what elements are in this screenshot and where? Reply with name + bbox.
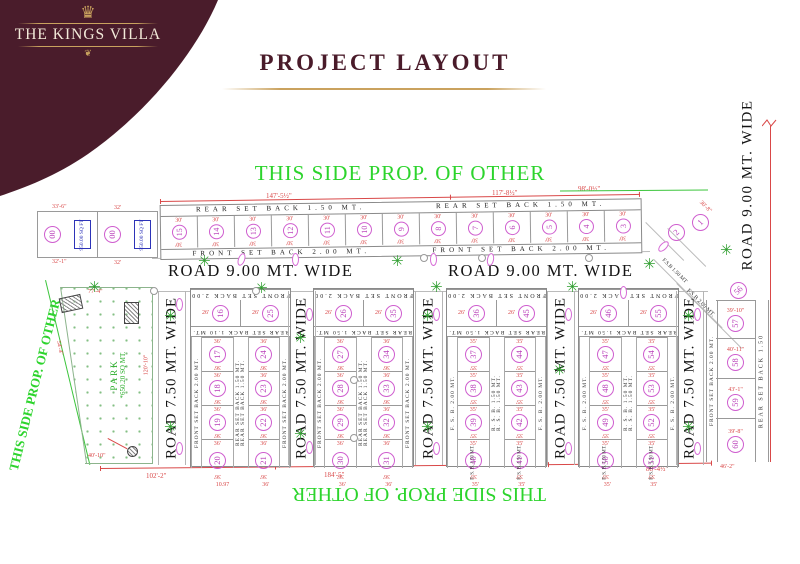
lamp-icon	[306, 441, 313, 454]
manhole-icon	[350, 376, 358, 384]
plot-number: 52	[643, 414, 660, 431]
manhole-icon	[478, 254, 486, 262]
plot-cell: 30'330'	[604, 210, 641, 242]
lamp-icon	[656, 239, 670, 253]
plot-cell: 36'1836'	[202, 371, 233, 405]
plot-cell: 26'25	[240, 300, 290, 326]
plot-column: 36'3436'36'3336'36'3236'36'3136'36'	[372, 337, 403, 468]
plot-dim: 26'	[252, 310, 259, 316]
tree-icon: ✳	[421, 420, 434, 435]
plot-cell: 26'26	[314, 300, 363, 326]
plot-number: 8	[430, 221, 445, 236]
rear-setback-label: REAR SET BACK 1.50 MT.	[447, 326, 546, 337]
plot-dim: 36'	[383, 432, 390, 438]
plot-cell: 35'4335'	[505, 371, 536, 405]
tree-icon: ✳	[553, 363, 566, 378]
front-setback-side-strip: FRONT SET BACK 2.00 MT.	[402, 337, 413, 468]
tree-icon: ✳	[421, 309, 434, 324]
plot-cell: 35'5235'	[637, 405, 668, 439]
plot-number: 9	[393, 222, 408, 237]
plot-dim: 35'	[472, 482, 479, 488]
plot-cell: 40'-11"58	[716, 338, 755, 378]
plot-dim: 35'	[516, 432, 523, 438]
plot-cell: 30'630'	[493, 212, 530, 244]
plot-area-text: 950.00 SQ FT	[79, 219, 85, 250]
plot-column: 36'1736'36'1836'36'1936'36'2036'10.97	[202, 337, 233, 468]
plot-number: 47	[597, 346, 614, 363]
plot-number: 6	[504, 220, 519, 235]
plot-dim: 36'	[214, 473, 221, 479]
plot-cell: 35'4035'35'F. S. B. 1.50 MT.	[458, 439, 489, 480]
tree-icon: ✳	[643, 257, 656, 272]
plot-dim: 35'	[516, 364, 523, 370]
plot-cell: 43'-1"59	[716, 378, 755, 418]
plot-number: 10	[356, 222, 371, 237]
plot-number: 45	[518, 305, 535, 322]
plot-cell: 36'2336'	[249, 371, 280, 405]
plot-dim: 30'	[471, 214, 478, 220]
plot-cell: 35'4835'	[590, 371, 621, 405]
plot-dim: 26'	[640, 310, 647, 316]
plot-dim: 30'	[324, 239, 331, 245]
plot-block: FRONT SET BACK 2.00 MT.26'3626'45REAR SE…	[446, 288, 547, 467]
tree-icon: ✳	[682, 309, 695, 324]
plot-dim: 43'-1"	[728, 387, 743, 393]
plot-dim: 36'	[214, 432, 221, 438]
plot-dim: 35'	[648, 373, 655, 379]
plot-dim: 30'	[583, 235, 590, 241]
plot-dim: 30'	[509, 236, 516, 242]
plot-number: 26	[335, 305, 352, 322]
fsb-label: F. S. B. 1.50 MT.	[471, 445, 476, 479]
plot-dim: 36'	[260, 407, 267, 413]
plot-dim: 36'	[383, 364, 390, 370]
setback-label: REAR SET BACK 1.50	[759, 334, 766, 428]
plot-dim: 36'	[337, 364, 344, 370]
plot-column: 35'3735'35'3835'35'3935'35'4035'35'F. S.…	[458, 337, 489, 468]
plot-dim: 36'	[260, 339, 267, 345]
plot-number: 18	[209, 380, 226, 397]
plot-cell: 36'3036'36'	[325, 439, 356, 480]
plot-dim: 36'	[214, 339, 221, 345]
plot-number: 17	[209, 346, 226, 363]
plot-dim: 36'	[260, 364, 267, 370]
plot-row: 26'1626'25	[191, 300, 290, 326]
tree-icon: ✳	[430, 280, 443, 295]
plot-dim: 30'	[249, 217, 256, 223]
plot-dim: 36'	[214, 398, 221, 404]
setback-label: FRONT SET BACK 2.00 MT.	[401, 243, 641, 256]
lamp-icon	[292, 253, 299, 266]
setback-label: F. S. B. 2.00 MT.	[449, 375, 455, 430]
plot-dim: 36'	[383, 473, 390, 479]
setback-label: FRONT SET BACK 2.00 MT.	[709, 336, 715, 426]
plot-dim: 26'	[375, 310, 382, 316]
plot-cell: 26'46	[579, 300, 628, 326]
setback-label: F. S. B. 2.00 MT.	[537, 375, 543, 430]
plot-area-box: 950.00 SQ FT	[74, 220, 91, 249]
plot-dim: 35'	[648, 432, 655, 438]
plot-cell: 30'930'	[382, 213, 419, 245]
rc-cells: 39'-10"5740'-11"5843'-1"5939'-8"60	[716, 300, 755, 462]
lamp-icon	[176, 442, 183, 455]
plot-cell: 30'1030'	[345, 214, 382, 246]
plot-dim: 39'-8"	[728, 429, 743, 435]
plot-cell: 36'3136'36'	[372, 439, 403, 480]
plot-number: 48	[597, 380, 614, 397]
plot-dim: 30'	[620, 234, 627, 240]
plot-dim: 30'	[286, 216, 293, 222]
plot-dim: 36'	[337, 398, 344, 404]
plot-dim: 35'	[518, 482, 525, 488]
fsb-label: F. S. B. 1.50 MT.	[603, 445, 608, 479]
front-setback-label: FRONT SET BACK 2.00 MT.	[191, 289, 290, 300]
plot-number: 11	[319, 223, 334, 238]
plot-dim: 35'	[516, 407, 523, 413]
plot-column: 36'2436'36'2336'36'2236'36'2136'36'	[249, 337, 280, 468]
plot-dim: 10.97	[216, 482, 230, 488]
plot-block: FRONT SET BACK 2.00 MT.26'4626'55REAR SE…	[578, 288, 679, 467]
plot-number: 57	[727, 315, 744, 332]
plot-number: 20	[209, 452, 226, 469]
plot-dim: 30'	[397, 215, 404, 221]
block-main: F. S. B. 2.00 MT.35'3735'35'3835'35'3935…	[447, 337, 546, 468]
plot-dim: 26'	[458, 310, 465, 316]
plot-dim: 35'	[516, 339, 523, 345]
plot-dim: 36'	[383, 398, 390, 404]
plot-cell: 35'3735'	[458, 337, 489, 371]
plot-dim: 36'	[260, 473, 267, 479]
plot-number: 56	[726, 278, 750, 302]
plot-cell: 26'35	[363, 300, 413, 326]
plot-dim: 36'	[260, 373, 267, 379]
plot-number: 28	[332, 380, 349, 397]
plot-number: 15	[171, 225, 186, 240]
plot-cell: 30'1130'	[308, 214, 345, 246]
plot-cell: 39'-8"60	[716, 418, 755, 462]
plot-number: 44	[511, 346, 528, 363]
rear-setback-center-strip: R. S. B. 1.50 MT.R. S. B. 1.50 MT.	[621, 337, 637, 468]
plot-dim: 36'	[337, 473, 344, 479]
plot-number: 30	[332, 452, 349, 469]
tree-icon: ✳	[164, 309, 177, 324]
lamp-icon	[620, 286, 627, 299]
lamp-icon	[433, 308, 440, 321]
setback-label: REAR SET BACK 1.50 MT.	[363, 360, 369, 446]
plot-cell: 36'2436'	[249, 337, 280, 371]
fsb-label: F. S. B. 1.50 MT.	[649, 445, 654, 479]
plot-area-box: 950.00 SQ FT	[134, 220, 151, 249]
rear-setback-center-strip: REAR SET BACK 1.50 MT.REAR SET BACK 1.50…	[233, 337, 249, 468]
plot-dim: 36'	[337, 432, 344, 438]
plot-number: 5	[541, 219, 556, 234]
plot-cell: 26'45	[496, 300, 546, 326]
plot-cell: 30'730'	[456, 212, 493, 244]
plot-number: 37	[465, 346, 482, 363]
manhole-icon	[585, 254, 593, 262]
plot-cell: 35'3935'	[458, 405, 489, 439]
plot-dim: 35'	[648, 364, 655, 370]
plot-cell: 00950.00 SQ FT	[37, 211, 98, 258]
manhole-icon	[420, 254, 428, 262]
plot-dim: 30'	[508, 213, 515, 219]
plot-cell: 36'3436'	[372, 337, 403, 371]
manhole-icon	[150, 287, 158, 295]
tree-icon: ✳	[566, 280, 579, 295]
plot-number: 7	[467, 220, 482, 235]
plot-number: 00	[44, 226, 61, 243]
plot-dim: 36'	[337, 373, 344, 379]
plot-dim: 36'	[383, 373, 390, 379]
lamp-icon	[176, 298, 183, 311]
plot-area-text: 950.00 SQ FT	[139, 219, 145, 250]
plot-cell: 30'430'	[567, 211, 604, 243]
front-setback-side-strip: FRONT SET BACK 2.00 MT.	[191, 337, 202, 468]
plot-column: 35'4735'35'4835'35'4935'35'5035'35'F. S.…	[590, 337, 621, 468]
setback-label: R. S. B. 1.50 MT.	[628, 375, 634, 431]
plot-dim: 30'	[546, 236, 553, 242]
rc-rear-strip: REAR SET BACK 1.50	[755, 300, 769, 462]
rear-setback-label: REAR SET BACK 1.50 MT.	[314, 326, 413, 337]
plot-block: FRONT SET BACK 2.00 MT.26'2626'35REAR SE…	[313, 288, 414, 467]
plot-dim: 35'	[470, 373, 477, 379]
plot-dim: 35'	[650, 482, 657, 488]
plot-number: 36	[468, 305, 485, 322]
lamp-icon	[430, 253, 437, 266]
plot-number: 54	[643, 346, 660, 363]
plot-cell: 30'830'	[419, 213, 456, 245]
front-setback-side-strip: F. S. B. 2.00 MT.	[535, 337, 546, 468]
plot-dim: 30'	[434, 214, 441, 220]
plot-dim: 35'	[648, 398, 655, 404]
plot-dim: 30'	[213, 240, 220, 246]
plot-dim: 35'	[648, 407, 655, 413]
plot-number: 39	[465, 414, 482, 431]
plot-dim: 30'	[472, 237, 479, 243]
plot-number: 49	[597, 414, 614, 431]
plot-dim: 36'	[260, 441, 267, 447]
front-setback-side-strip: F. S. B. 2.00 MT.	[447, 337, 458, 468]
plot-cell: 30'1530'	[161, 216, 197, 247]
plot-dim: 36'	[383, 441, 390, 447]
plot-cell: 30'1430'	[197, 216, 234, 248]
plot-dim: 35'	[602, 364, 609, 370]
tree-icon: ✳	[294, 331, 307, 346]
block-main: FRONT SET BACK 2.00 MT.36'1736'36'1836'3…	[191, 337, 290, 468]
tree-icon: ✳	[198, 254, 211, 269]
plot-dim: 35'	[648, 339, 655, 345]
plot-dim: 30'	[287, 239, 294, 245]
plot-number: 46	[600, 305, 617, 322]
plot-number: 24	[255, 346, 272, 363]
tree-icon: ✳	[88, 280, 101, 295]
plot-dim: 35'	[602, 339, 609, 345]
plot-dim: 36'	[337, 339, 344, 345]
plot-cell: 36'3236'	[372, 405, 403, 439]
fsb-label: F. S. B. 1.50 MT.	[517, 445, 522, 479]
plot-dim: 35'	[602, 407, 609, 413]
plot-number: 22	[255, 414, 272, 431]
plot-cell: 36'2736'	[325, 337, 356, 371]
plot-dim: 36'	[214, 407, 221, 413]
plot-number: 25	[262, 305, 279, 322]
plot-dim: 30'	[176, 241, 183, 247]
plot-cell: 39'-10"57	[716, 300, 755, 338]
plot-dim: 36'	[260, 398, 267, 404]
lamp-icon	[433, 442, 440, 455]
rear-setback-label: REAR SET BACK 1.50 MT.	[579, 326, 678, 337]
plot-dim: 36'	[260, 432, 267, 438]
plot-row: 26'4626'55	[579, 300, 678, 326]
plot-cell: 26'36	[447, 300, 496, 326]
plot-cell: 30'1230'	[271, 215, 308, 247]
setback-label: F. S. B. 2.00 MT.	[581, 375, 587, 430]
lamp-icon	[306, 308, 313, 321]
plot-cell: 35'4435'	[505, 337, 536, 371]
setback-label: F. S. B. 2.00 MT.	[669, 375, 675, 430]
plot-number: 23	[255, 380, 272, 397]
plot-dim: 30'	[361, 238, 368, 244]
plot-cell: 36'3336'	[372, 371, 403, 405]
setback-label: FRONT SET BACK 2.00 MT.	[281, 357, 287, 447]
plot-block: FRONT SET BACK 2.00 MT.26'1626'25REAR SE…	[190, 288, 291, 467]
plot-dim: 35'	[604, 482, 611, 488]
plot-cell: 36'1736'	[202, 337, 233, 371]
manhole-icon	[252, 287, 260, 295]
block-main: F. S. B. 2.00 MT.35'4735'35'4835'35'4935…	[579, 337, 678, 468]
project-layout-page: ♛ THE KINGS VILLA ❦ PROJECT LAYOUT THIS …	[0, 0, 800, 564]
plot-dim: 40'-11"	[727, 347, 744, 353]
plot-cell: 35'4935'	[590, 405, 621, 439]
plot-number: 13	[245, 224, 260, 239]
plot-column: 35'4435'35'4335'35'4235'35'4135'35'F. S.…	[505, 337, 536, 468]
plot-number: 32	[378, 414, 395, 431]
plot-number: 34	[378, 346, 395, 363]
plot-dim: 35'	[516, 398, 523, 404]
plot-dim: 26'	[508, 310, 515, 316]
setback-label: R. S. B. 1.50 MT.	[496, 375, 502, 431]
lamp-icon	[694, 308, 701, 321]
plot-number: 58	[727, 354, 744, 371]
front-setback-label: FRONT SET BACK 2.00 MT.	[579, 289, 678, 300]
plot-cell: 35'3835'	[458, 371, 489, 405]
plot-dim: 35'	[470, 364, 477, 370]
plot-number: 1	[688, 210, 712, 234]
plot-dim: 35'	[602, 373, 609, 379]
plot-dim: 35'	[470, 407, 477, 413]
plot-dim: 26'	[590, 310, 597, 316]
rear-setback-label: REAR SET BACK 1.10 MT.	[191, 326, 290, 337]
plot-dim: 30'	[619, 211, 626, 217]
plot-number: 35	[385, 305, 402, 322]
plot-cell: 35'4135'35'F. S. B. 1.50 MT.	[505, 439, 536, 480]
front-setback-side-strip: F. S. B. 2.00 MT.	[579, 337, 590, 468]
plot-dim: 30'	[435, 237, 442, 243]
tree-icon: ✳	[164, 420, 177, 435]
plot-dim: 30'	[250, 240, 257, 246]
plot-dim: 30'	[398, 238, 405, 244]
setback-label: REAR SET BACK 1.50 MT.	[240, 360, 246, 446]
plot-dim: 36'	[262, 482, 269, 488]
front-setback-label: FRONT SET BACK 2.00 MT.	[314, 289, 413, 300]
plot-cell: 26'16	[191, 300, 240, 326]
plot-number: 53	[643, 380, 660, 397]
plot-dim: 36'	[337, 407, 344, 413]
plot-dim: 30'	[545, 213, 552, 219]
plot-column: 35'5435'35'5335'35'5235'35'5135'35'F. S.…	[637, 337, 668, 468]
plot-dim: 36'	[337, 441, 344, 447]
plot-dim: 36'	[339, 482, 346, 488]
plot-dim: 30'	[360, 215, 367, 221]
lamp-icon	[486, 252, 495, 266]
tree-icon: ✳	[391, 254, 404, 269]
setback-label: FRONT SET BACK 2.00 MT.	[404, 357, 410, 447]
plot-cell: 35'5135'35'F. S. B. 1.50 MT.	[637, 439, 668, 480]
plot-dim: 30'	[323, 216, 330, 222]
plot-dim: 36'	[214, 364, 221, 370]
lamp-icon	[565, 308, 572, 321]
plot-dim: 35'	[470, 432, 477, 438]
plot-number: 31	[378, 452, 395, 469]
tree-icon: ✳	[682, 420, 695, 435]
plot-cell: 36'2036'10.97	[202, 439, 233, 480]
plot-dim: 30'	[175, 218, 182, 224]
plot-dim: 36'	[383, 407, 390, 413]
plot-dim: 35'	[602, 432, 609, 438]
plot-number: 21	[255, 452, 272, 469]
plot-dim: 30'	[212, 217, 219, 223]
plot-number: 27	[332, 346, 349, 363]
plot-number: 42	[511, 414, 528, 431]
plot-dim: 36'	[214, 441, 221, 447]
plot-cell: 30'530'	[530, 211, 567, 243]
plot-number: 59	[727, 394, 744, 411]
plot-number: 4	[578, 219, 593, 234]
plot-number: 00	[104, 226, 121, 243]
front-setback-label: FRONT SET BACK 2.00 MT.	[447, 289, 546, 300]
plot-number: 29	[332, 414, 349, 431]
setback-label: FRONT SET BACK 2.00 MT.	[316, 357, 322, 447]
plot-row: 26'3626'45	[447, 300, 546, 326]
plot-number: 55	[650, 305, 667, 322]
plot-dim: 26'	[325, 310, 332, 316]
plot-number: 33	[378, 380, 395, 397]
plot-cell: 36'2136'36'	[249, 439, 280, 480]
plot-number: 14	[208, 224, 223, 239]
plot-number: 12	[282, 223, 297, 238]
lamp-icon	[565, 442, 572, 455]
plot-dim: 39'-10"	[727, 308, 745, 314]
plot-dim: 36'	[214, 373, 221, 379]
plot-number: 19	[209, 414, 226, 431]
plot-dim: 26'	[202, 310, 209, 316]
plot-number: 60	[727, 436, 744, 453]
plot-dim: 35'	[470, 339, 477, 345]
tree-icon: ✳	[720, 243, 733, 258]
site-plan: 00950.00 SQ FT00950.00 SQ FTREAR SET BAC…	[0, 0, 800, 564]
plot-column: 36'2736'36'2836'36'2936'36'3036'36'	[325, 337, 356, 468]
plot-dim: 35'	[470, 398, 477, 404]
plot-dim: 36'	[383, 339, 390, 345]
plot-cell: 35'5035'35'F. S. B. 1.50 MT.	[590, 439, 621, 480]
tree-icon: ✳	[294, 427, 307, 442]
plot-cell: 35'4735'	[590, 337, 621, 371]
plot-cell: 30'1330'	[234, 215, 271, 247]
plot-cell: 35'5335'	[637, 371, 668, 405]
plot-cell: 36'1936'	[202, 405, 233, 439]
plot-cell: 00950.00 SQ FT	[97, 211, 158, 258]
plot-dim: 35'	[516, 373, 523, 379]
